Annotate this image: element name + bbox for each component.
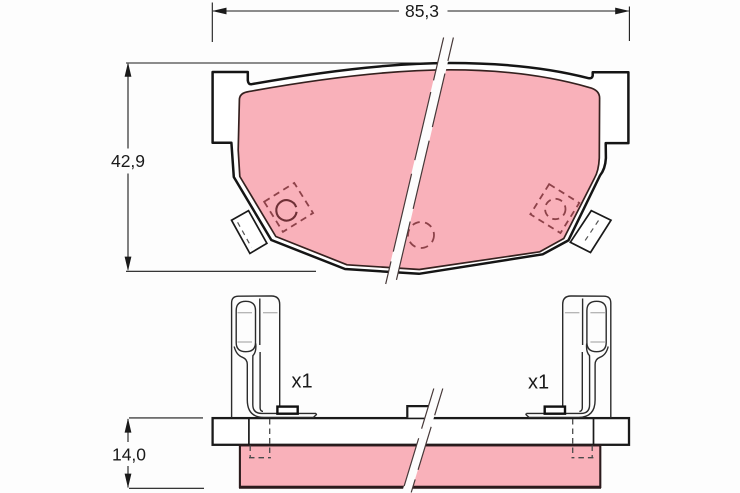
svg-text:14,0: 14,0 <box>112 444 146 464</box>
svg-text:x1: x1 <box>291 371 312 393</box>
svg-text:42,9: 42,9 <box>111 151 145 171</box>
svg-text:x1: x1 <box>528 372 549 394</box>
svg-text:85,3: 85,3 <box>405 1 439 21</box>
